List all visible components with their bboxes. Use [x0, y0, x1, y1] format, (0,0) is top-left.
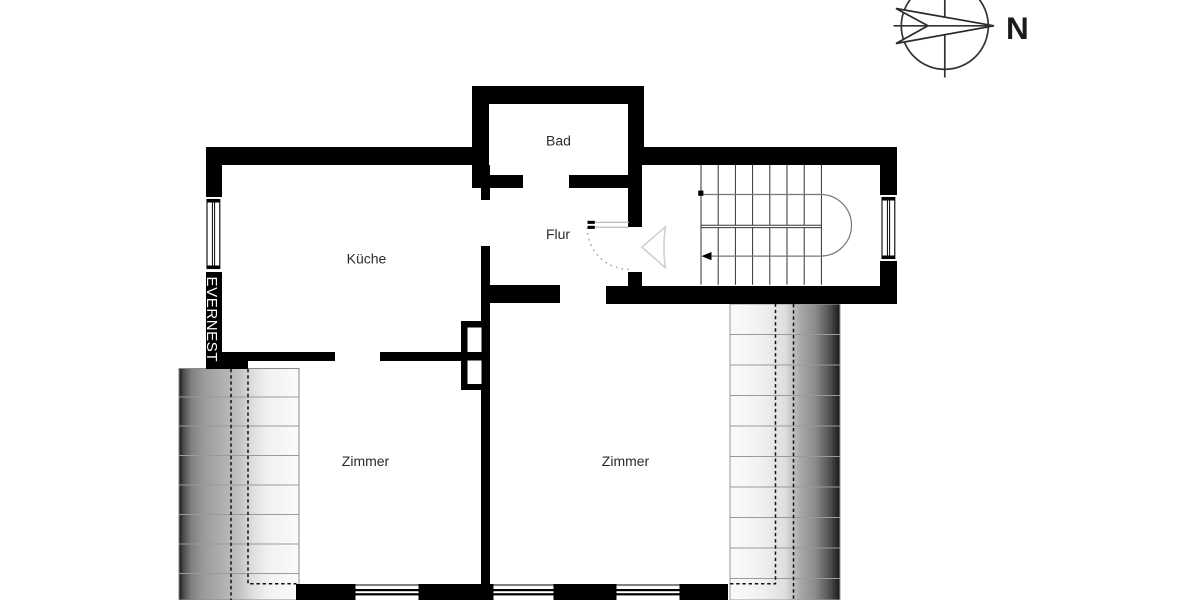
svg-text:Zimmer: Zimmer — [342, 453, 390, 469]
svg-text:Bad: Bad — [546, 132, 571, 148]
svg-text:Flur: Flur — [546, 226, 570, 242]
svg-text:Küche: Küche — [347, 251, 387, 267]
svg-text:N: N — [1006, 10, 1029, 46]
svg-text:Zimmer: Zimmer — [602, 453, 650, 469]
svg-text:EVERNEST: EVERNEST — [203, 277, 220, 363]
